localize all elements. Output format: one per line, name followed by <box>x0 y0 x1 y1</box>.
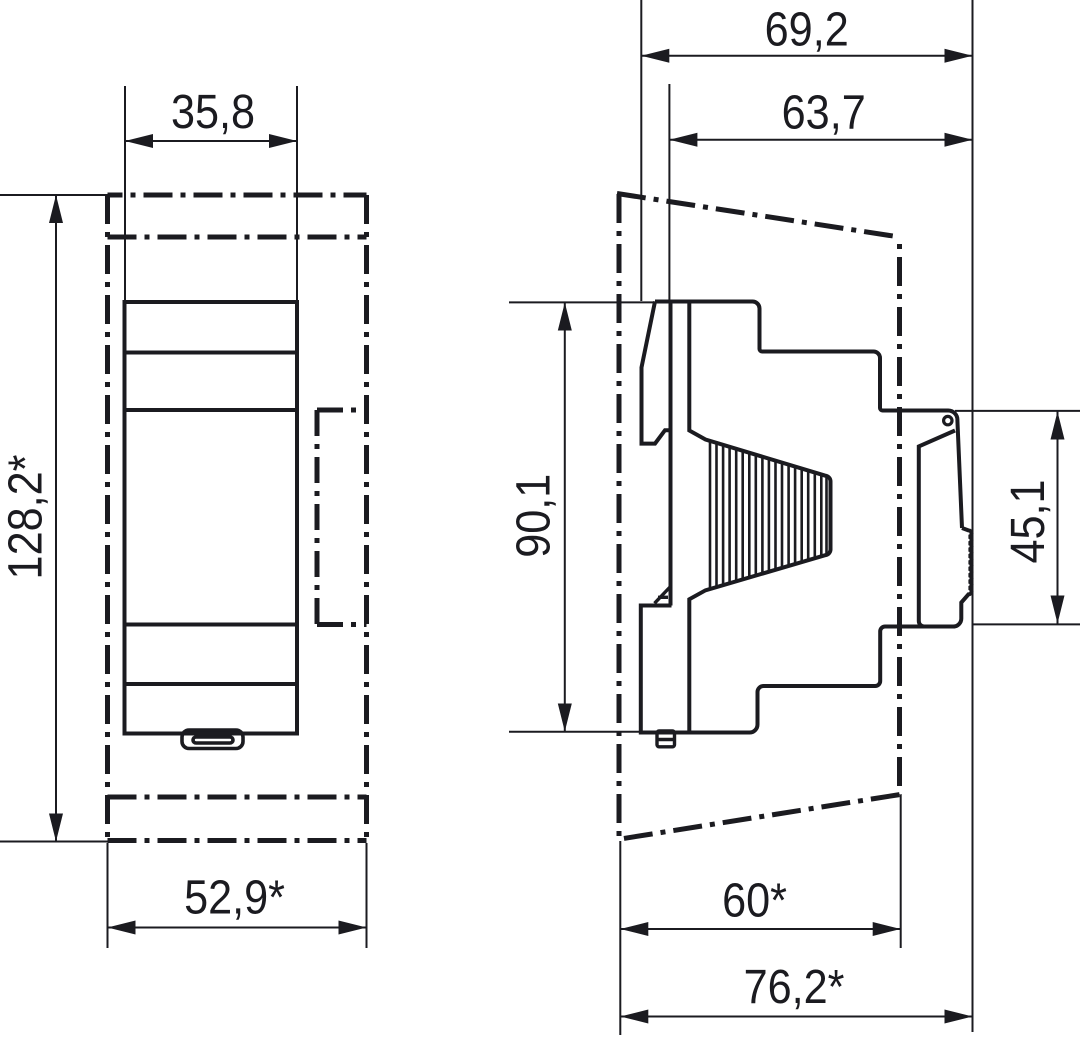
svg-text:128,2*: 128,2* <box>0 454 52 579</box>
svg-text:63,7: 63,7 <box>782 85 866 139</box>
svg-text:90,1: 90,1 <box>506 474 560 558</box>
svg-text:69,2: 69,2 <box>765 2 849 56</box>
svg-text:35,8: 35,8 <box>171 85 255 139</box>
svg-text:76,2*: 76,2* <box>744 960 845 1014</box>
svg-text:60*: 60* <box>722 874 787 928</box>
svg-text:52,9*: 52,9* <box>184 870 285 924</box>
svg-text:45,1: 45,1 <box>1001 479 1055 563</box>
